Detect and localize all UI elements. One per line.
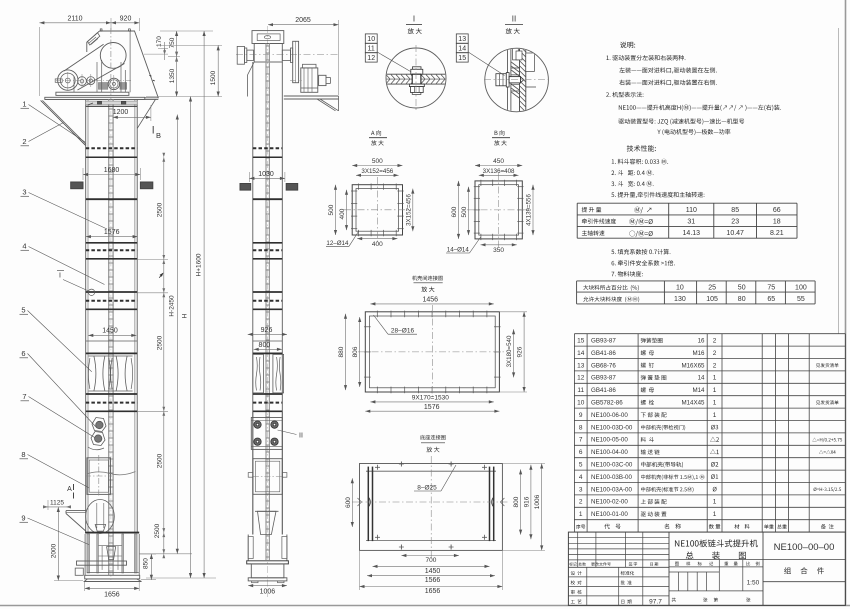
svg-text:4X139=556: 4X139=556 <box>526 194 533 226</box>
svg-text:10: 10 <box>577 400 585 407</box>
svg-text:50: 50 <box>738 285 746 292</box>
svg-text:GB93-87: GB93-87 <box>591 375 616 382</box>
svg-text:2: 2 <box>713 350 717 357</box>
svg-text:916: 916 <box>523 496 530 507</box>
svg-text:11: 11 <box>577 387 584 394</box>
svg-text:14.13: 14.13 <box>683 230 701 237</box>
svg-text:4: 4 <box>22 242 26 251</box>
svg-text:2000: 2000 <box>51 543 58 558</box>
svg-text:NE100-03D-00: NE100-03D-00 <box>591 424 633 431</box>
svg-text:6: 6 <box>21 349 25 358</box>
svg-text:2: 2 <box>579 499 583 506</box>
svg-text:1200: 1200 <box>113 109 129 116</box>
svg-text:31: 31 <box>687 218 695 225</box>
svg-text:10.47: 10.47 <box>726 230 744 237</box>
svg-text:5: 5 <box>21 306 25 315</box>
svg-text:14: 14 <box>698 375 705 382</box>
svg-text:1: 1 <box>713 387 717 394</box>
svg-text:1456: 1456 <box>423 296 439 303</box>
svg-text:NE100-03C-00: NE100-03C-00 <box>591 462 633 469</box>
svg-text:500: 500 <box>461 206 468 217</box>
svg-text:926: 926 <box>517 346 524 357</box>
svg-text:2: 2 <box>22 137 26 146</box>
svg-text:66: 66 <box>773 207 781 214</box>
svg-text:85: 85 <box>731 207 739 214</box>
svg-text:10: 10 <box>367 36 375 43</box>
svg-text:1: 1 <box>713 400 717 407</box>
svg-text:1656: 1656 <box>104 592 120 599</box>
svg-text:110: 110 <box>686 207 697 214</box>
svg-text:14: 14 <box>458 46 466 53</box>
svg-text:75: 75 <box>767 285 775 292</box>
svg-text:2: 2 <box>713 338 717 345</box>
svg-text:3: 3 <box>579 486 583 493</box>
svg-text:1: 1 <box>713 412 717 419</box>
svg-text:NE100-05-00: NE100-05-00 <box>591 437 628 444</box>
svg-text:12–Ø14: 12–Ø14 <box>326 240 349 247</box>
svg-text:80: 80 <box>738 296 746 303</box>
svg-text:1125: 1125 <box>50 499 64 506</box>
svg-text:2500: 2500 <box>156 202 163 217</box>
svg-text:8.21: 8.21 <box>770 230 784 237</box>
svg-text:9X170=1530: 9X170=1530 <box>412 395 449 402</box>
svg-text:850: 850 <box>142 558 149 569</box>
svg-text:400: 400 <box>372 241 383 248</box>
svg-text:806: 806 <box>352 346 359 357</box>
svg-text:600: 600 <box>451 206 458 217</box>
svg-text:II: II <box>299 433 303 440</box>
svg-text:97.7: 97.7 <box>649 599 662 606</box>
svg-text:I: I <box>59 273 61 280</box>
svg-text:600: 600 <box>345 497 352 508</box>
svg-text:3X152=456: 3X152=456 <box>405 194 412 226</box>
svg-text:7: 7 <box>579 437 583 444</box>
svg-text:M16X65: M16X65 <box>681 362 705 369</box>
svg-text:NE100-06-00: NE100-06-00 <box>591 412 628 419</box>
svg-text:350: 350 <box>493 247 504 254</box>
svg-text:800: 800 <box>513 496 520 507</box>
svg-text:5: 5 <box>579 462 583 469</box>
svg-text:750: 750 <box>169 37 176 48</box>
svg-text:2500: 2500 <box>156 453 163 468</box>
svg-text:NE100–00–00: NE100–00–00 <box>774 542 835 553</box>
svg-text:8–Ø25: 8–Ø25 <box>417 484 437 491</box>
svg-text:16: 16 <box>698 338 705 345</box>
svg-text:9: 9 <box>579 412 583 419</box>
svg-text:2065: 2065 <box>295 17 311 24</box>
svg-text:15: 15 <box>577 338 585 345</box>
svg-text:NE100-01-00: NE100-01-00 <box>591 511 628 518</box>
svg-text:1566: 1566 <box>425 577 441 584</box>
svg-text:700: 700 <box>425 557 436 564</box>
svg-text:1576: 1576 <box>104 229 120 236</box>
svg-text:1006: 1006 <box>260 589 276 596</box>
svg-text:1: 1 <box>579 511 583 518</box>
svg-text:65: 65 <box>767 296 775 303</box>
svg-text:4: 4 <box>579 474 583 481</box>
svg-text:1450: 1450 <box>425 568 441 575</box>
svg-text:NE100-03A-00: NE100-03A-00 <box>591 486 632 493</box>
svg-text:105: 105 <box>706 296 718 303</box>
svg-text:14–Ø14: 14–Ø14 <box>447 247 470 254</box>
svg-text:M14X45: M14X45 <box>681 400 705 407</box>
svg-text:3X136=408: 3X136=408 <box>483 168 515 175</box>
svg-text:A: A <box>67 486 72 493</box>
svg-text:14: 14 <box>577 350 585 357</box>
svg-text:23: 23 <box>731 218 739 225</box>
svg-text:H: H <box>182 313 189 318</box>
svg-text:400: 400 <box>339 208 346 219</box>
svg-text:GB93-87: GB93-87 <box>591 338 616 345</box>
svg-text:II: II <box>512 15 516 24</box>
svg-text:926: 926 <box>261 327 273 334</box>
svg-text:18: 18 <box>773 218 781 225</box>
svg-text:1:50: 1:50 <box>747 580 760 587</box>
svg-text:1: 1 <box>22 100 26 109</box>
svg-text:1350: 1350 <box>169 68 176 83</box>
svg-text:500: 500 <box>372 158 383 165</box>
svg-text:12: 12 <box>367 55 375 62</box>
svg-text:B: B <box>156 131 161 140</box>
svg-text:M14: M14 <box>692 387 705 394</box>
svg-text:1: 1 <box>713 499 717 506</box>
svg-text:25: 25 <box>708 285 716 292</box>
svg-text:11: 11 <box>368 46 375 53</box>
svg-text:500: 500 <box>328 204 335 215</box>
svg-text:55: 55 <box>797 296 805 303</box>
svg-text:NE100-03B-00: NE100-03B-00 <box>591 474 632 481</box>
svg-text:GB68-76: GB68-76 <box>591 362 616 369</box>
svg-text:7: 7 <box>22 392 26 401</box>
svg-text:3X152=456: 3X152=456 <box>361 168 393 175</box>
svg-text:M16: M16 <box>692 350 705 357</box>
svg-text:H+1600: H+1600 <box>195 253 202 276</box>
svg-text:13: 13 <box>577 362 585 369</box>
svg-text:1: 1 <box>713 511 717 518</box>
svg-text:3X180=540: 3X180=540 <box>506 335 513 367</box>
svg-text:NE100-04-00: NE100-04-00 <box>591 449 628 456</box>
svg-text:1030: 1030 <box>258 171 274 178</box>
svg-text:GB5782-86: GB5782-86 <box>591 400 623 407</box>
svg-text:10: 10 <box>676 285 684 292</box>
svg-text:1450: 1450 <box>102 328 118 335</box>
svg-text:3: 3 <box>22 188 26 197</box>
svg-text:15: 15 <box>458 55 466 62</box>
svg-text:800: 800 <box>259 342 271 349</box>
svg-text:1500: 1500 <box>210 70 217 85</box>
svg-text:6: 6 <box>579 449 583 456</box>
svg-text:880: 880 <box>338 346 345 357</box>
svg-text:28–Ø16: 28–Ø16 <box>391 328 415 335</box>
svg-text:2: 2 <box>713 362 717 369</box>
svg-text:130: 130 <box>674 296 686 303</box>
svg-text:9: 9 <box>21 514 25 523</box>
svg-text:8: 8 <box>579 424 583 431</box>
svg-text:GB41-86: GB41-86 <box>591 350 616 357</box>
svg-text:I: I <box>413 15 415 24</box>
svg-text:8: 8 <box>21 450 25 459</box>
svg-text:12: 12 <box>577 375 585 382</box>
svg-text:2500: 2500 <box>156 335 163 350</box>
svg-text:920: 920 <box>120 15 132 22</box>
svg-text:100: 100 <box>795 285 807 292</box>
svg-text:1680: 1680 <box>104 167 120 174</box>
svg-text:H-2450: H-2450 <box>168 295 175 317</box>
svg-text:1656: 1656 <box>425 588 441 595</box>
svg-text:450: 450 <box>493 158 504 165</box>
svg-text:1006: 1006 <box>534 494 541 509</box>
svg-text:2500: 2500 <box>154 523 161 538</box>
svg-text:NE100-02-00: NE100-02-00 <box>591 499 628 506</box>
svg-text:1576: 1576 <box>424 404 440 411</box>
svg-text:GB41-86: GB41-86 <box>591 387 616 394</box>
svg-text:13: 13 <box>458 36 466 43</box>
svg-text:1: 1 <box>713 375 717 382</box>
svg-text:2110: 2110 <box>67 15 82 22</box>
